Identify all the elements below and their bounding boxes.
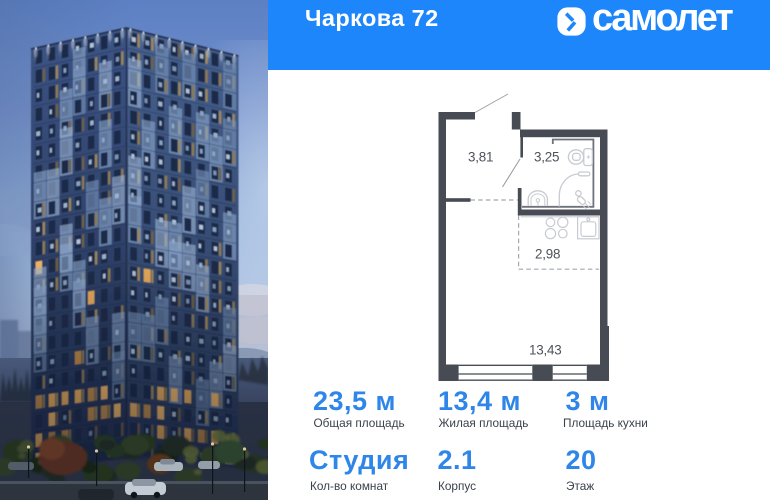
svg-text:3,25: 3,25 (534, 150, 559, 165)
svg-text:3,81: 3,81 (468, 150, 493, 165)
svg-text:2,98: 2,98 (535, 247, 560, 262)
svg-text:13,43: 13,43 (529, 343, 562, 358)
